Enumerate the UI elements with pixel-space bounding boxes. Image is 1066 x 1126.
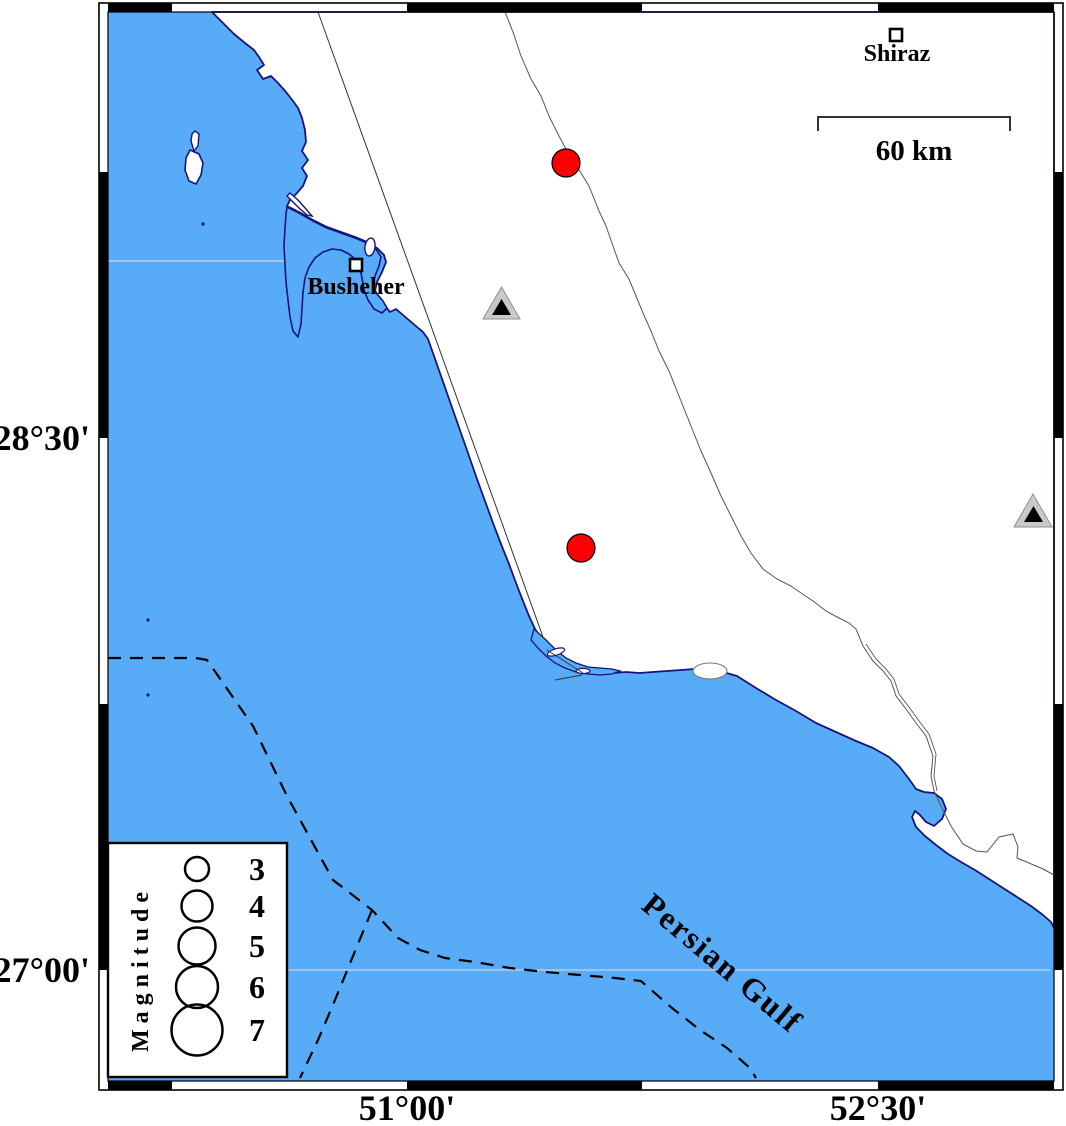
map-area: Persian Gulf Shiraz Busheher xyxy=(108,12,1054,1081)
legend-value: 5 xyxy=(249,928,265,964)
legend-value: 3 xyxy=(249,851,265,887)
legend-value: 4 xyxy=(249,888,265,924)
coastal-island xyxy=(693,663,727,679)
city-label: Busheher xyxy=(307,274,405,300)
legend-value: 6 xyxy=(249,969,265,1005)
scale-bar-label: 60 km xyxy=(876,135,953,167)
lat-label-2700: 27°00' xyxy=(0,950,90,990)
lon-label-5230: 52°30' xyxy=(830,1088,926,1126)
tiny-island xyxy=(201,222,204,225)
lon-label-5100: 51°00' xyxy=(359,1088,455,1126)
earthquake-marker[interactable] xyxy=(567,534,595,562)
earthquake-marker[interactable] xyxy=(552,149,580,177)
tiny-island xyxy=(146,693,149,696)
city-square-icon[interactable] xyxy=(890,29,902,41)
city-square-icon[interactable] xyxy=(350,259,362,271)
legend-value: 7 xyxy=(249,1012,265,1048)
magnitude-legend: Magnitude 3 4 5 6 7 xyxy=(108,843,287,1077)
lat-label-2830: 28°30' xyxy=(0,418,90,458)
city-label: Shiraz xyxy=(864,41,931,67)
tiny-island xyxy=(146,618,149,621)
legend-title: Magnitude xyxy=(128,886,154,1052)
map-canvas: Persian Gulf Shiraz Busheher xyxy=(0,0,1066,1126)
legend-values: 3 4 5 6 7 xyxy=(249,851,265,1048)
